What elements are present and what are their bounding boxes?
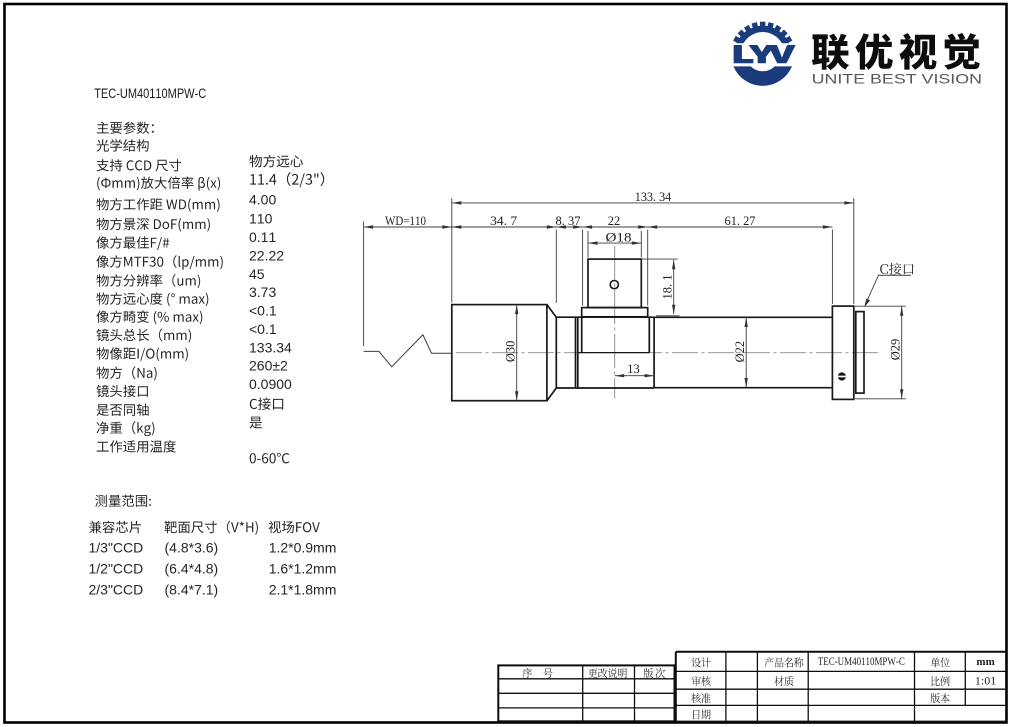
svg-text:<0.1: <0.1 [249, 303, 277, 319]
svg-text:45: 45 [249, 266, 265, 282]
svg-text:mm: mm [976, 656, 994, 668]
svg-text:TEC-UM40110MPW-C: TEC-UM40110MPW-C [818, 654, 905, 668]
svg-text:13: 13 [627, 362, 640, 376]
svg-text:Ø29: Ø29 [889, 339, 903, 361]
svg-text:WD=110: WD=110 [385, 214, 426, 228]
svg-text:Ø30: Ø30 [504, 341, 518, 363]
svg-text:133.34: 133.34 [249, 340, 292, 356]
svg-text:(6.4*4.8): (6.4*4.8) [165, 560, 219, 576]
svg-text:3.73: 3.73 [249, 284, 276, 300]
svg-text:(4.8*3.6): (4.8*3.6) [165, 539, 219, 555]
svg-text:UNITE BEST VISION: UNITE BEST VISION [812, 71, 982, 86]
svg-text:(8.4*7.1): (8.4*7.1) [165, 581, 219, 597]
svg-text:260±2: 260±2 [249, 358, 288, 374]
svg-text:<0.1: <0.1 [249, 321, 277, 337]
svg-text:22: 22 [608, 214, 621, 228]
svg-text:1.6*1.2mm: 1.6*1.2mm [269, 560, 337, 576]
svg-text:110: 110 [249, 210, 273, 226]
svg-text:2/3"CCD: 2/3"CCD [89, 581, 144, 597]
svg-text:1/2"CCD: 1/2"CCD [89, 560, 144, 576]
svg-text:1:01: 1:01 [975, 674, 996, 688]
svg-text:22.22: 22.22 [249, 247, 284, 263]
svg-text:34. 7: 34. 7 [490, 214, 517, 228]
svg-text:8. 37: 8. 37 [556, 214, 581, 228]
svg-text:TEC-UM40110MPW-C: TEC-UM40110MPW-C [94, 86, 206, 101]
svg-text:133. 34: 133. 34 [635, 190, 672, 204]
svg-text:4.00: 4.00 [249, 191, 276, 207]
svg-text:0.11: 0.11 [249, 229, 276, 245]
svg-text:1.2*0.9mm: 1.2*0.9mm [269, 539, 337, 555]
svg-text:2.1*1.8mm: 2.1*1.8mm [269, 581, 337, 597]
svg-text:Ø18: Ø18 [606, 230, 632, 244]
svg-text:61. 27: 61. 27 [725, 214, 756, 228]
svg-text:Ø22: Ø22 [733, 341, 747, 363]
svg-text:1/3"CCD: 1/3"CCD [89, 539, 144, 555]
svg-text:0.0900: 0.0900 [249, 376, 292, 392]
svg-text:18. 1: 18. 1 [661, 275, 675, 300]
